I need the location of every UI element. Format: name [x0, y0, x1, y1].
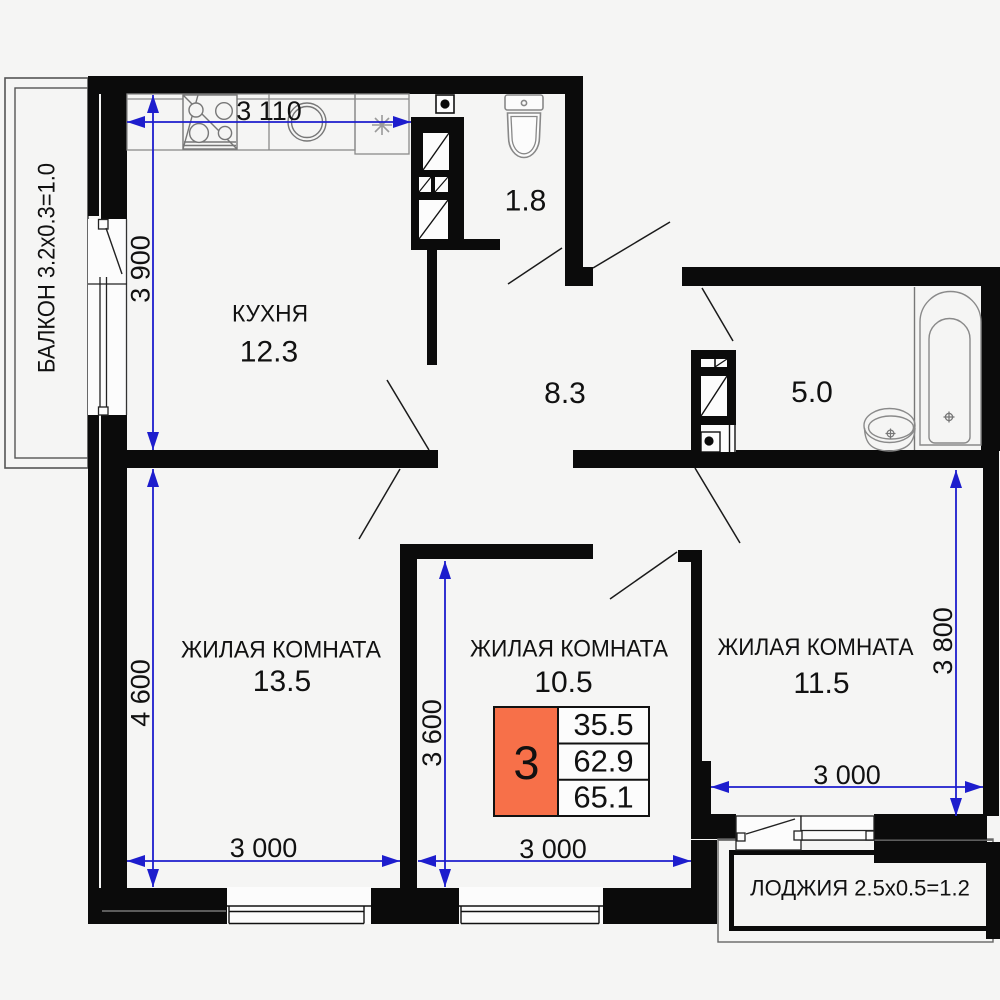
svg-text:БАЛКОН 3.2x0.3=1.0: БАЛКОН 3.2x0.3=1.0 — [34, 163, 61, 373]
svg-text:КУХНЯ: КУХНЯ — [232, 301, 308, 328]
svg-text:8.3: 8.3 — [544, 377, 586, 410]
svg-text:3: 3 — [513, 736, 539, 789]
svg-text:62.9: 62.9 — [573, 744, 633, 779]
svg-text:11.5: 11.5 — [793, 667, 849, 700]
svg-text:10.5: 10.5 — [534, 666, 592, 699]
svg-text:4 600: 4 600 — [126, 659, 156, 727]
svg-text:1.8: 1.8 — [505, 185, 547, 218]
svg-text:65.1: 65.1 — [573, 780, 633, 815]
svg-text:3 000: 3 000 — [813, 760, 881, 790]
svg-text:3 000: 3 000 — [519, 834, 587, 864]
svg-text:13.5: 13.5 — [253, 665, 311, 698]
svg-text:3 800: 3 800 — [928, 607, 958, 675]
svg-text:3 900: 3 900 — [126, 235, 156, 303]
svg-text:3 110: 3 110 — [236, 96, 302, 126]
svg-text:ЖИЛАЯ КОМНАТА: ЖИЛАЯ КОМНАТА — [181, 637, 381, 664]
svg-text:35.5: 35.5 — [573, 707, 633, 742]
svg-text:ЖИЛАЯ КОМНАТА: ЖИЛАЯ КОМНАТА — [718, 634, 914, 661]
svg-text:3 000: 3 000 — [230, 833, 298, 863]
svg-text:12.3: 12.3 — [240, 336, 298, 369]
svg-text:3 600: 3 600 — [417, 699, 447, 767]
svg-text:5.0: 5.0 — [791, 376, 833, 409]
svg-text:ЛОДЖИЯ 2.5x0.5=1.2: ЛОДЖИЯ 2.5x0.5=1.2 — [750, 876, 970, 901]
svg-text:ЖИЛАЯ КОМНАТА: ЖИЛАЯ КОМНАТА — [470, 636, 668, 663]
